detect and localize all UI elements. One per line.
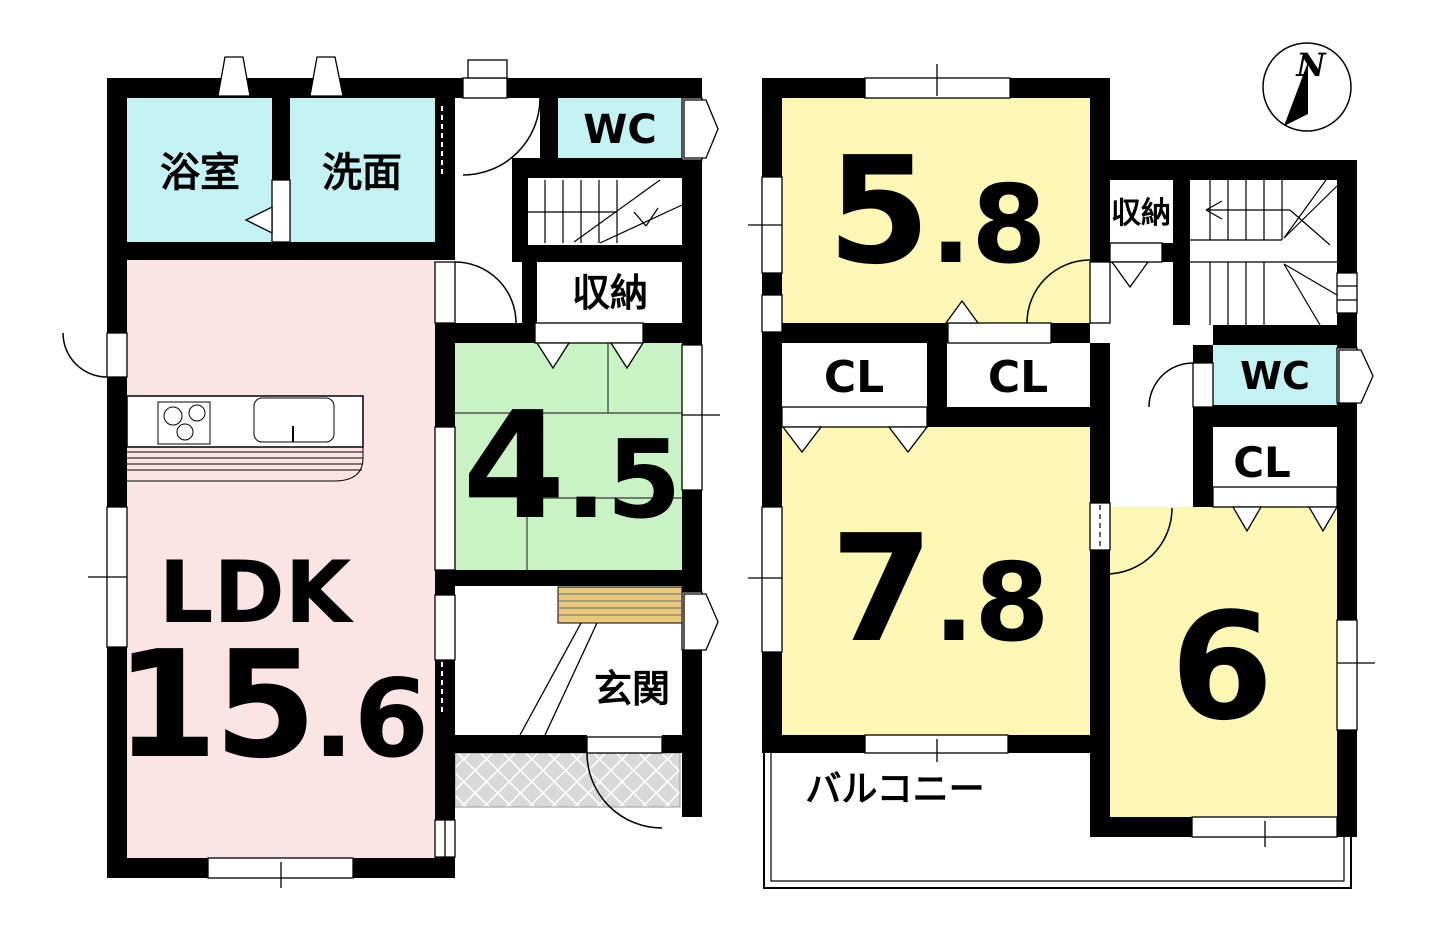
- floor-plan-page: 浴室 洗面 WC 収納 4.5 LDK 15.6 玄関: [0, 0, 1443, 931]
- label-balcony: バルコニー: [805, 769, 984, 810]
- label-storage-1f: 収納: [572, 271, 648, 315]
- window-cl-left: [762, 295, 782, 332]
- floor-plan-drawing: 浴室 洗面 WC 収納 4.5 LDK 15.6 玄関: [0, 0, 1443, 931]
- bay-window-entrance-icon: [684, 594, 718, 650]
- window-6-right: [1337, 620, 1357, 730]
- closet-door-notch-icon: [1112, 262, 1148, 287]
- window-stairs-right: [1337, 273, 1357, 313]
- label-washroom: 洗面: [322, 150, 402, 196]
- label-entrance: 玄関: [594, 667, 670, 711]
- compass-north-icon: N: [1263, 43, 1351, 131]
- door-arc-ldk: [455, 262, 516, 323]
- floor2-plan: 5.8 収納 CL CL WC CL 7.8 6 バルコニー: [748, 64, 1375, 888]
- door-arc-wc-2f: [1149, 363, 1193, 407]
- door-gap-kitchen-side: [107, 333, 127, 377]
- staircase-2f: [1190, 180, 1337, 325]
- label-cl-a: CL: [824, 352, 884, 403]
- closet-opening-cl-c: [1213, 487, 1337, 507]
- closet-opening-cl-a: [782, 407, 927, 427]
- door-gap-bath: [272, 180, 290, 242]
- closet-opening-storage-2f: [1110, 243, 1162, 262]
- label-wc-1f: WC: [583, 107, 656, 153]
- bay-window-wc-icon: [684, 100, 718, 158]
- sliding-door-ldk-tatami: [435, 427, 455, 570]
- window-tatami-right: [682, 345, 702, 490]
- entrance-details: [520, 587, 682, 735]
- front-door-leaf: [587, 737, 662, 753]
- label-room-6: 6: [1171, 581, 1274, 753]
- shoe-cabinet: [558, 587, 682, 623]
- window-7.8-left: [762, 507, 782, 652]
- label-cl-c: CL: [1233, 438, 1291, 487]
- closet-opening-5.8: [948, 323, 1051, 343]
- label-cl-b: CL: [988, 352, 1048, 403]
- entrance-porch: [455, 753, 680, 807]
- entrance-step-lines: [520, 623, 597, 735]
- closet-opening-1f: [535, 323, 643, 343]
- wc-2f-door-leaf: [1193, 363, 1213, 407]
- floor1-plan: 浴室 洗面 WC 収納 4.5 LDK 15.6 玄関: [63, 57, 720, 888]
- label-storage-2f: 収納: [1111, 196, 1171, 231]
- window-top-hall-outer: [468, 60, 507, 78]
- door-arc-kitchen-side: [63, 333, 107, 377]
- door-gap-ldk-hall: [435, 262, 455, 323]
- bay-window-wc-2f-icon: [1339, 350, 1373, 403]
- vent-window-bath-icon: [218, 57, 250, 96]
- vent-window-washroom-icon: [310, 57, 343, 96]
- compass-n-label: N: [1295, 46, 1327, 84]
- door-gap-5.8: [1090, 262, 1110, 323]
- door-gap-ldk-entrance: [435, 595, 455, 660]
- label-bathroom: 浴室: [160, 150, 240, 196]
- staircase-1f: [528, 180, 682, 243]
- window-top-hall: [463, 78, 507, 98]
- label-wc-2f: WC: [1240, 354, 1310, 398]
